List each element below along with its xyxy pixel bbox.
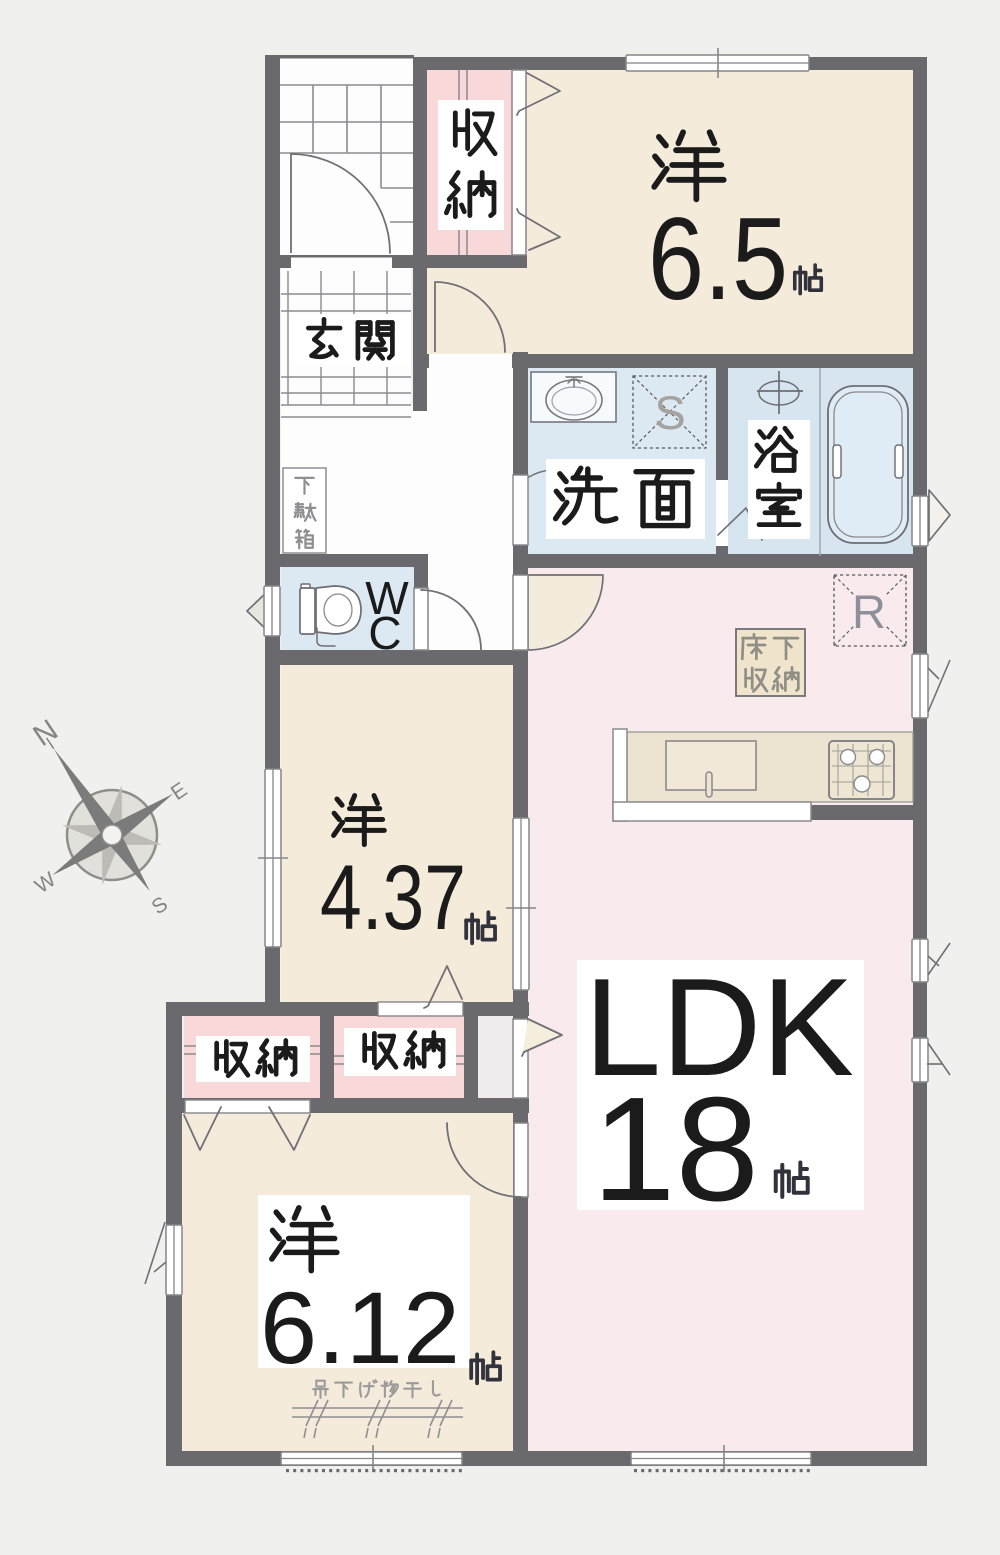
svg-text:6.12: 6.12 [260, 1271, 460, 1385]
svg-text:C: C [368, 607, 401, 659]
svg-text:6.5: 6.5 [648, 193, 788, 324]
svg-text:4.37: 4.37 [320, 847, 466, 949]
svg-text:S: S [654, 386, 685, 439]
svg-text:18: 18 [592, 1067, 759, 1232]
svg-text:R: R [852, 585, 886, 638]
